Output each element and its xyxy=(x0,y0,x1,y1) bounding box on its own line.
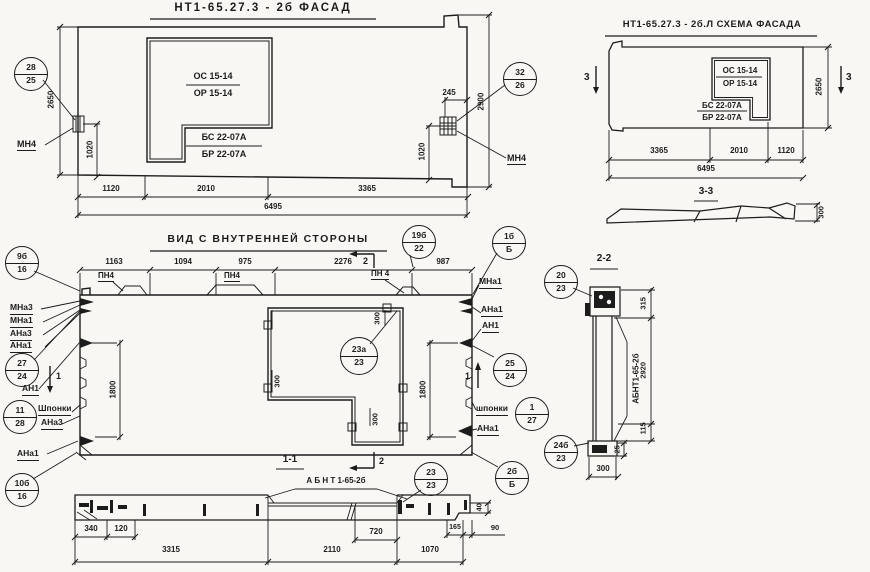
dim-975: 975 xyxy=(225,257,265,266)
callout-top: 2б xyxy=(496,466,528,478)
s11-hatch xyxy=(77,510,97,520)
callout-25-24: 25 24 xyxy=(493,353,527,387)
s11-beam-bracket xyxy=(265,489,407,499)
dim-115: 115 xyxy=(640,408,649,448)
callout-bottom: 22 xyxy=(403,243,435,254)
callout-bottom: 24 xyxy=(494,371,526,382)
section-marker-arrows xyxy=(47,251,481,471)
s22-label-bracket xyxy=(614,317,627,441)
schema-window-mark-os: ОС 15-14 xyxy=(714,66,766,75)
facade-window-mark-or: ОР 15-14 xyxy=(185,88,241,98)
dim-3315: 3315 xyxy=(151,545,191,554)
embed-label-an1-right: АН1 xyxy=(482,321,499,333)
callout-28-25: 28 25 xyxy=(14,57,48,91)
callout-9b-16: 9б 16 xyxy=(5,246,39,280)
section-2-marker-bottom: 2 xyxy=(379,456,384,466)
inner-corner-details xyxy=(76,445,472,460)
section-marker-lines xyxy=(50,254,478,468)
callout-bottom: 28 xyxy=(4,418,36,429)
dim-3365-schema: 3365 xyxy=(639,146,679,155)
callout-1-27: 1 27 xyxy=(515,397,549,431)
dim-1070: 1070 xyxy=(410,545,450,554)
shponki-label-right: шпонки xyxy=(476,404,508,416)
callout-24b-23: 24б 23 xyxy=(544,435,578,469)
pocket-label-pn4-2: ПН4 xyxy=(224,271,240,282)
embed-label-ana1-left-2: АНа1 xyxy=(17,449,39,461)
s11-opening-lines xyxy=(268,495,403,520)
dim-2920: 2920 xyxy=(640,350,649,390)
embed-label-mna3-left: МНа3 xyxy=(10,303,33,315)
dim-340: 340 xyxy=(76,524,106,533)
shponki-label-left: Шпонки xyxy=(38,404,71,416)
dim-1020-right: 1020 xyxy=(417,132,426,172)
callout-top: 19б xyxy=(403,230,435,242)
dim-300-window-tr: 300 xyxy=(374,298,383,338)
callout-bottom: Б xyxy=(493,244,525,255)
callout-bottom: 23 xyxy=(545,283,577,294)
facade-window-mark-br: БР 22-07А xyxy=(187,149,261,159)
callout-top: 11 xyxy=(4,405,36,417)
inner-view-title: ВИД С ВНУТРЕННЕЙ СТОРОНЫ xyxy=(148,233,388,245)
embed-label-ana3-left: АНа3 xyxy=(10,329,32,341)
callout-bottom: 23 xyxy=(415,480,447,491)
dim-40: 40 xyxy=(476,492,485,522)
callout-top: 9б xyxy=(6,251,38,263)
dim-720: 720 xyxy=(361,527,391,536)
facade-window-outer xyxy=(147,38,272,162)
section-2-2-title: 2-2 xyxy=(589,253,619,265)
pocket-label-pn4-1: ПН4 xyxy=(98,271,114,282)
callout-20-23: 20 23 xyxy=(544,265,578,299)
dim-1120-schema: 1120 xyxy=(766,146,806,155)
callout-top: 20 xyxy=(545,270,577,282)
dim-1120-facade: 1120 xyxy=(91,184,131,193)
callout-bottom: Б xyxy=(496,479,528,490)
schema-title: НТ1-65.27.3 - 2б.Л СХЕМА ФАСАДА xyxy=(606,20,818,31)
embed-label-ana3-left-2: АНа3 xyxy=(41,418,63,430)
callout-1b-b: 1б Б xyxy=(492,226,526,260)
callout-top: 1б xyxy=(493,231,525,243)
section-3-marker-right: 3 xyxy=(846,72,852,84)
dim-2650-facade: 2650 xyxy=(46,80,55,120)
schema-window-mark-br: БР 22-07А xyxy=(694,113,750,122)
pn4-pockets xyxy=(113,280,420,295)
facade-window-mark-bs: БС 22-07А xyxy=(187,132,261,142)
dim-1094: 1094 xyxy=(163,257,203,266)
embed-label-ana1-left: АНа1 xyxy=(10,341,32,353)
s11-dim-lines xyxy=(75,503,505,565)
dim-165: 165 xyxy=(443,524,467,532)
section-3-3-profile xyxy=(607,203,795,223)
section-2-marker-top: 2 xyxy=(363,256,368,266)
dim-300-s33: 300 xyxy=(818,192,827,232)
embed-label-mn4-left: МН4 xyxy=(17,139,36,151)
dim-245: 245 xyxy=(437,88,461,97)
dim-315: 315 xyxy=(640,283,649,323)
facade-title: НТ1-65.27.3 - 2б ФАСАД xyxy=(150,2,376,15)
embed-label-ana1-right: АНа1 xyxy=(481,305,503,317)
pocket-label-pn4-3: ПН 4 xyxy=(371,269,389,280)
window-embed-marks xyxy=(264,304,407,431)
s22-anchor-dot-2 xyxy=(607,300,611,304)
section-1-1-title: 1-1 xyxy=(275,454,305,466)
dim-1800-left: 1800 xyxy=(108,370,117,410)
callout-top: 10б xyxy=(6,478,38,490)
callout-bottom: 24 xyxy=(6,371,38,382)
dim-987: 987 xyxy=(423,257,463,266)
dim-2110: 2110 xyxy=(312,545,352,554)
callout-bottom: 26 xyxy=(504,80,536,91)
embed-label-mna1-left: МНа1 xyxy=(10,316,33,328)
callout-top: 27 xyxy=(6,358,38,370)
dim-3365-facade: 3365 xyxy=(347,184,387,193)
dim-1163: 1163 xyxy=(94,257,134,266)
dim-2010-facade: 2010 xyxy=(186,184,226,193)
dim-6495-schema: 6495 xyxy=(686,164,726,173)
section-1-marker-right: 1 xyxy=(465,371,470,381)
dim-2276: 2276 xyxy=(323,257,363,266)
callout-2b-b: 2б Б xyxy=(495,461,529,495)
callout-top: 25 xyxy=(494,358,526,370)
callout-bottom: 25 xyxy=(15,75,47,86)
callout-11-28: 11 28 xyxy=(3,400,37,434)
section-3-marker-left: 3 xyxy=(584,72,590,84)
callout-10b-16: 10б 16 xyxy=(5,473,39,507)
schema-window-mark-or: ОР 15-14 xyxy=(714,79,766,88)
s22-anchor-dot-1 xyxy=(599,295,603,299)
callout-bottom: 16 xyxy=(6,491,38,502)
callout-23-23: 23 23 xyxy=(414,462,448,496)
s22-bottom-embed-fill xyxy=(592,445,607,453)
embed-label-mna1-right: МНа1 xyxy=(479,277,502,289)
dim-300-s22: 300 xyxy=(588,464,618,473)
dim-1800-right: 1800 xyxy=(418,370,427,410)
callout-top: 28 xyxy=(15,62,47,74)
facade-window-mark-os: ОС 15-14 xyxy=(185,71,241,81)
callout-23a-23: 23а 23 xyxy=(340,337,378,375)
dim-300-window-leg: 300 xyxy=(372,399,381,439)
s11-beam-label: А Б Н Т 1-65-2б xyxy=(291,476,381,486)
engineering-drawing: НТ1-65.27.3 - 2б ФАСАД ОС 15-14 ОР 15-14… xyxy=(0,0,870,572)
embed-label-mn4-right: МН4 xyxy=(507,153,526,165)
dim-2010-schema: 2010 xyxy=(719,146,759,155)
callout-top: 1 xyxy=(516,402,548,414)
callout-top: 32 xyxy=(504,67,536,79)
inner-top-dim-chain xyxy=(80,270,472,295)
dim-1020-left: 1020 xyxy=(85,130,94,170)
dim-300-window-ml: 300 xyxy=(274,361,283,401)
dim-2900-facade: 2900 xyxy=(476,82,485,122)
callout-top: 23 xyxy=(415,467,447,479)
section-3-3-title: 3-3 xyxy=(691,186,721,198)
callout-bottom: 16 xyxy=(6,264,38,275)
dim-90: 90 xyxy=(487,524,503,533)
dim-120: 120 xyxy=(106,524,136,533)
dim-2650-schema: 2650 xyxy=(814,67,823,107)
embed-label-ana1-right-2: АНа1 xyxy=(477,424,499,436)
callout-top: 24б xyxy=(545,440,577,452)
callout-32-26: 32 26 xyxy=(503,62,537,96)
callout-top: 23а xyxy=(341,344,377,356)
callout-bottom: 23 xyxy=(341,357,377,368)
callout-27-24: 27 24 xyxy=(5,353,39,387)
callout-19b-22: 19б 22 xyxy=(402,225,436,259)
callout-bottom: 23 xyxy=(545,453,577,464)
callout-bottom: 27 xyxy=(516,415,548,426)
dim-6495-facade: 6495 xyxy=(253,202,293,211)
section-1-marker-left: 1 xyxy=(56,371,61,381)
schema-window-mark-bs: БС 22-07А xyxy=(694,101,750,110)
s22-bar xyxy=(593,316,612,441)
